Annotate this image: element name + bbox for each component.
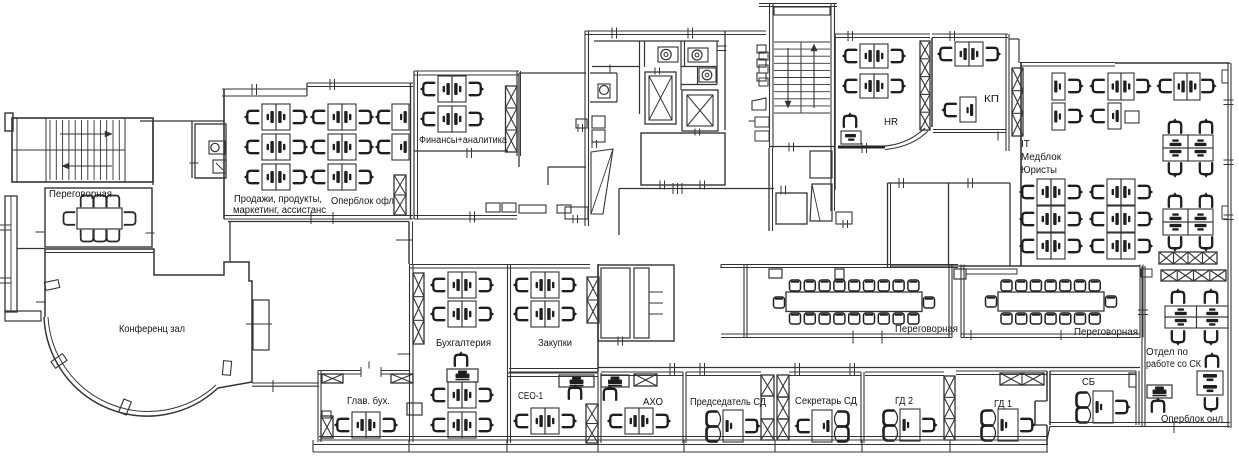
svg-text:Финансы+аналитика: Финансы+аналитика — [419, 135, 507, 146]
svg-text:Юристы: Юристы — [1021, 165, 1057, 176]
svg-text:АХО: АХО — [643, 397, 663, 408]
svg-text:IT: IT — [1021, 139, 1030, 150]
svg-text:СБ: СБ — [1082, 377, 1095, 388]
svg-text:Оперблок офл: Оперблок офл — [331, 195, 394, 207]
svg-text:Медблок: Медблок — [1021, 151, 1062, 163]
svg-text:Отдел по: Отдел по — [1146, 347, 1188, 358]
svg-text:Конференц зал: Конференц зал — [119, 323, 185, 335]
svg-text:Продажи, продукты,: Продажи, продукты, — [234, 194, 322, 205]
svg-text:Закупки: Закупки — [538, 338, 572, 349]
svg-text:ГД 2: ГД 2 — [895, 396, 913, 407]
svg-text:Председатель СД: Председатель СД — [690, 397, 766, 408]
svg-text:Оперблок онл: Оперблок онл — [1161, 413, 1223, 425]
svg-text:Бухгалтерия: Бухгалтерия — [436, 338, 491, 349]
svg-text:СЕО-1: СЕО-1 — [518, 391, 543, 402]
svg-text:КП: КП — [984, 94, 999, 105]
svg-text:HR: HR — [884, 117, 898, 128]
svg-text:маркетинг, ассистанс: маркетинг, ассистанс — [233, 205, 326, 216]
svg-text:работе со СК: работе со СК — [1146, 358, 1201, 370]
svg-text:Глав. бух.: Глав. бух. — [347, 395, 390, 407]
svg-text:Переговорная: Переговорная — [1074, 327, 1138, 338]
svg-text:Секретарь СД: Секретарь СД — [795, 396, 857, 407]
svg-text:ГД 1: ГД 1 — [994, 399, 1012, 410]
svg-text:Переговорная: Переговорная — [895, 324, 958, 335]
